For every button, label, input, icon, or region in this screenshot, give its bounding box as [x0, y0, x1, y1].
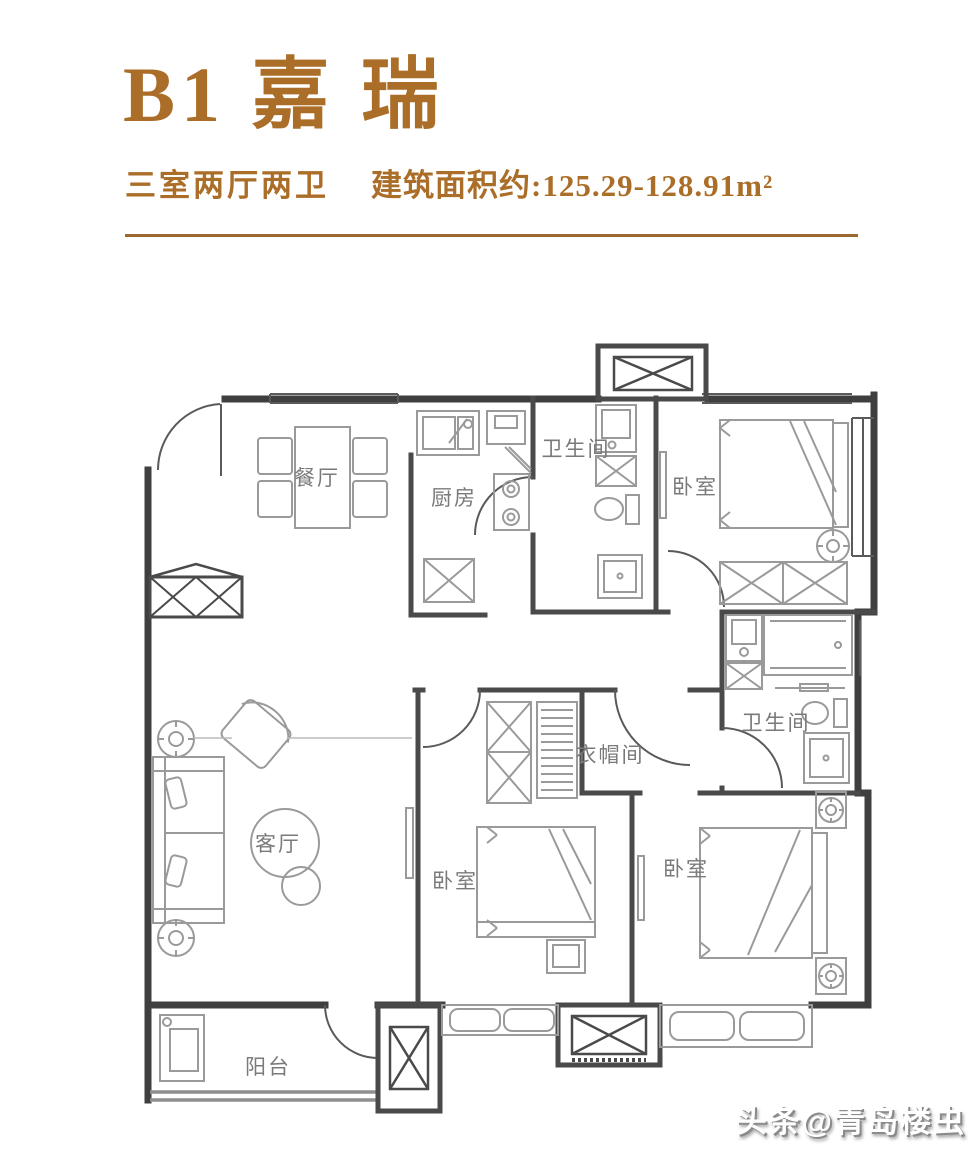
living-sofa — [153, 757, 224, 923]
kitchen-counter — [487, 411, 531, 473]
bathroom1-fixtures — [595, 405, 642, 598]
interior-walls — [411, 398, 874, 1005]
bedroom2-wardrobe — [487, 702, 531, 803]
bedroom3-tv — [638, 856, 644, 920]
living-armchair — [218, 692, 299, 772]
room-labels: 餐厅 厨房 卫生间 卧室 客厅 衣帽间 卫生间 卧室 卧室 阳台 — [245, 438, 811, 1079]
room-label-bedroom1: 卧室 — [672, 476, 718, 499]
room-label-kitchen: 厨房 — [431, 487, 477, 510]
room-label-bedroom3: 卧室 — [663, 858, 709, 881]
ceiling-speaker-bottom — [158, 920, 194, 956]
room-label-bathroom2: 卫生间 — [742, 712, 811, 735]
bedroom1-bed — [720, 420, 848, 528]
floorplan-page: B1 嘉 瑞 三室两厅两卫建筑面积约:125.29-128.91m² — [0, 0, 974, 1152]
living-rug — [251, 809, 320, 905]
shafts — [150, 346, 706, 1111]
kitchen-stove — [494, 474, 529, 530]
watermark: 头条@青岛楼虫 — [736, 1096, 966, 1141]
bedroom3-nightstand-bottom — [816, 958, 846, 994]
living-tv — [406, 808, 413, 878]
bay-window-bedroom3 — [660, 1005, 812, 1047]
furniture — [153, 405, 852, 1081]
bedroom3-bed — [700, 828, 827, 958]
kitchen-sink — [417, 411, 479, 455]
room-label-bathroom1: 卫生间 — [542, 438, 611, 461]
room-label-living: 客厅 — [255, 833, 301, 856]
room-label-bedroom2: 卧室 — [432, 870, 478, 893]
room-label-dining: 餐厅 — [294, 467, 340, 490]
balcony-water-heater — [160, 1015, 204, 1081]
bay-window-bedroom2 — [442, 1005, 558, 1035]
bedroom1-ceiling-fan — [817, 530, 849, 562]
closet-rack — [537, 702, 577, 798]
bathroom2-fixtures — [726, 615, 852, 783]
room-label-closet: 衣帽间 — [576, 744, 645, 767]
balcony-window — [150, 1092, 380, 1100]
bedroom1-tv — [660, 452, 666, 518]
ceiling-speaker-top — [158, 721, 194, 757]
bedroom1-wardrobe — [720, 562, 847, 604]
bedroom2-bed — [477, 827, 595, 973]
floorplan-canvas: 餐厅 厨房 卫生间 卧室 客厅 衣帽间 卫生间 卧室 卧室 阳台 — [0, 0, 974, 1152]
room-label-balcony: 阳台 — [245, 1056, 291, 1079]
kitchen-cabinet — [424, 559, 474, 602]
bedroom3-nightstand-top — [816, 792, 846, 828]
windows — [270, 394, 874, 676]
platform-left — [150, 564, 242, 577]
